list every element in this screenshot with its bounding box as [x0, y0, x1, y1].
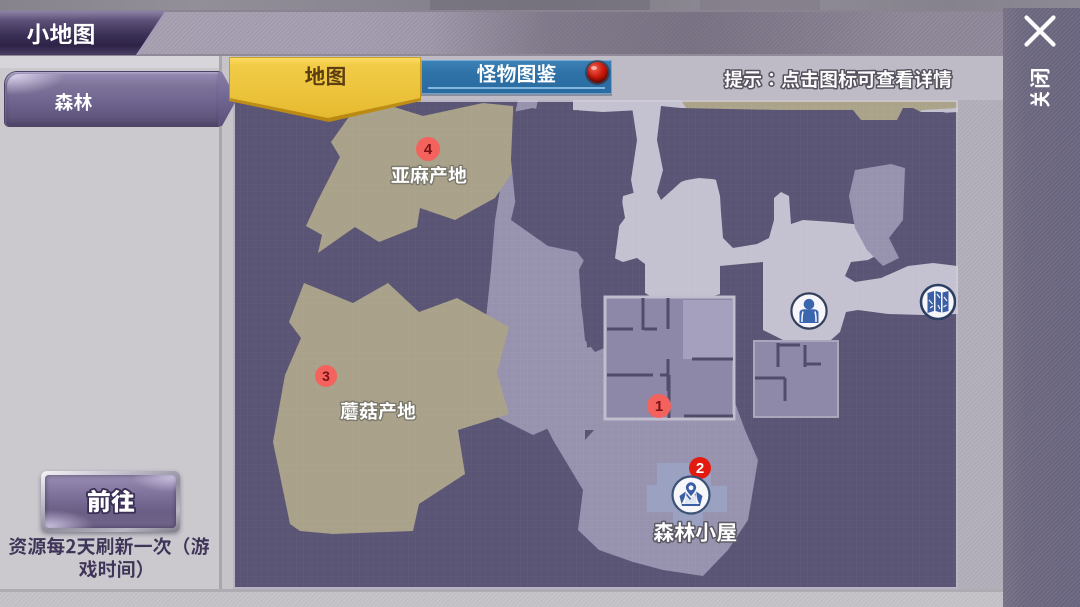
svg-text:1: 1: [655, 398, 663, 415]
svg-text:4: 4: [424, 141, 433, 158]
svg-text:2: 2: [696, 460, 704, 477]
svg-text:3: 3: [322, 368, 330, 384]
